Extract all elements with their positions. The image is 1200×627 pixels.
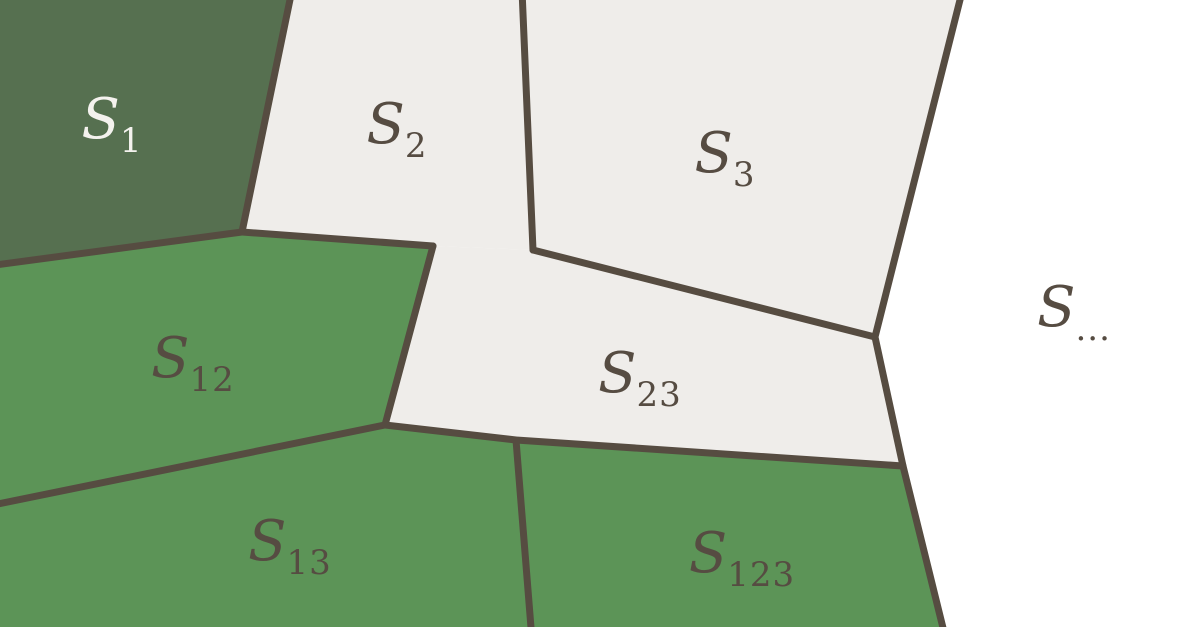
region-s3-label-main: S	[694, 121, 732, 186]
region-s2-label-main: S	[366, 92, 404, 157]
region-s123-label-subscript: 123	[727, 555, 795, 595]
diagram-canvas: S1S2S3S12S23S13S123S...	[0, 0, 1200, 627]
region-s13-label-subscript: 13	[287, 543, 332, 583]
region-s1-label-main: S	[81, 87, 119, 152]
region-s12-label-main: S	[151, 326, 189, 391]
region-s23-label-main: S	[598, 341, 636, 406]
region-s13-label-main: S	[248, 509, 286, 574]
figure-wrapper: S1S2S3S12S23S13S123S...	[0, 0, 1200, 627]
region-srest-label-main: S	[1037, 275, 1075, 340]
region-s12-label-subscript: 12	[190, 360, 235, 400]
region-s123-shape	[516, 440, 943, 627]
region-s123-label-main: S	[689, 521, 727, 586]
region-s1-label-subscript: 1	[120, 121, 143, 161]
region-s2-label-subscript: 2	[405, 126, 428, 166]
region-s3-label-subscript: 3	[733, 155, 756, 195]
region-s23-label-subscript: 23	[637, 375, 682, 415]
region-srest-label-subscript: ...	[1075, 309, 1110, 349]
